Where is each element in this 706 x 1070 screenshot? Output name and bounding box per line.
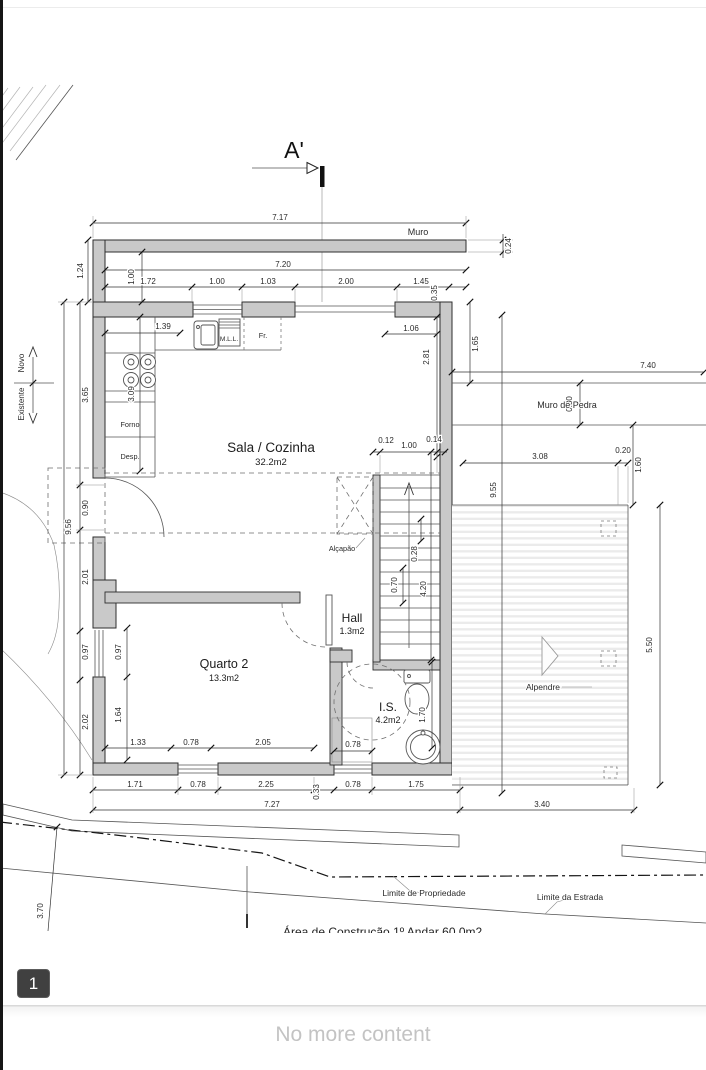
dim-1-60: 1.60 <box>634 457 643 473</box>
dim-0-12: 0.12 <box>378 436 394 445</box>
dim-7-20: 7.20 <box>275 260 291 269</box>
dim-1-33: 1.33 <box>130 738 146 747</box>
dim-7-40: 7.40 <box>640 361 656 370</box>
dishwasher-label: M.L.L. <box>220 336 238 343</box>
door-arc <box>105 478 164 537</box>
dim-3-65: 3.65 <box>81 387 90 403</box>
open-door-leaf <box>326 595 332 645</box>
dim-0-70: 0.70 <box>390 577 399 593</box>
door-arc-quarto2 <box>282 603 326 647</box>
dim-1-39: 1.39 <box>155 322 171 331</box>
dim-0-90: 0.90 <box>81 500 90 516</box>
dim-0-78-c: 0.78 <box>190 780 206 789</box>
novo-label: Novo <box>17 353 26 372</box>
dim-1-45: 1.45 <box>413 277 429 286</box>
dim-0-97-out: 0.97 <box>81 644 90 660</box>
garden-wall <box>93 240 466 252</box>
dim-1-00-v: 1.00 <box>127 269 136 285</box>
pantry-label: Desp. <box>120 452 139 461</box>
dim-2-02: 2.02 <box>81 714 90 730</box>
washbasin-icon <box>406 730 440 764</box>
dim-0-78-d: 0.78 <box>345 780 361 789</box>
alpendre-label: Alpendre <box>526 682 560 692</box>
room-hall-area: 1.3m2 <box>339 626 364 636</box>
footer-separator <box>0 1005 706 1017</box>
property-boundary-line <box>0 822 706 877</box>
dim-1-72: 1.72 <box>140 277 156 286</box>
dim-1-71: 1.71 <box>127 780 143 789</box>
dim-2-25: 2.25 <box>258 780 274 789</box>
dim-1-03: 1.03 <box>260 277 276 286</box>
dim-7-17: 7.17 <box>272 213 288 222</box>
stairs <box>373 475 440 662</box>
dim-2-81: 2.81 <box>422 349 431 365</box>
dim-0-14: 0.14 <box>426 435 442 444</box>
dim-3-08: 3.08 <box>532 452 548 461</box>
room-hall-name: Hall <box>342 611 363 625</box>
oven-label: Forno <box>120 420 139 429</box>
limite-estrada-label: Limite da Estrada <box>537 892 603 902</box>
dim-3-40: 3.40 <box>534 800 550 809</box>
room-is-area: 4.2m2 <box>375 715 400 725</box>
stove-icon <box>124 355 156 388</box>
dim-0-20: 0.20 <box>615 446 631 455</box>
dim-0-35: 0.35 <box>430 285 439 301</box>
dim-5-50: 5.50 <box>645 637 654 653</box>
page-number-badge: 1 <box>17 969 50 998</box>
viewer-footer: No more content <box>0 1005 706 1070</box>
dim-2-05: 2.05 <box>255 738 271 747</box>
room-quarto2-area: 13.3m2 <box>209 673 239 683</box>
muro-de-pedra-label: Muro de Pedra <box>537 400 597 410</box>
room-quarto2-name: Quarto 2 <box>200 657 249 671</box>
sink-icon <box>194 321 218 349</box>
fridge-label: Fr. <box>259 331 268 340</box>
dim-3-70: 3.70 <box>36 903 45 919</box>
dim-1-06: 1.06 <box>403 324 419 333</box>
dim-3-09: 3.09 <box>127 386 136 402</box>
end-of-content-message: No more content <box>0 1023 706 1047</box>
document-viewer: A' <box>0 0 706 1070</box>
dim-0-33: 0.33 <box>312 784 321 800</box>
section-label: A' <box>284 137 304 163</box>
limite-propriedade-label: Limite de Propriedade <box>382 888 465 898</box>
dim-9-56: 9.56 <box>64 519 73 535</box>
deck <box>452 383 706 785</box>
edge-strip <box>0 0 3 1070</box>
dim-9-55: 9.55 <box>489 482 498 498</box>
dim-1-24: 1.24 <box>76 263 85 279</box>
dim-2-00: 2.00 <box>338 277 354 286</box>
trapdoor <box>337 477 373 548</box>
existente-label: Existente <box>17 387 26 420</box>
dim-4-20: 4.20 <box>419 581 428 597</box>
muro-label: Muro <box>408 227 429 237</box>
dim-2-01: 2.01 <box>81 569 90 585</box>
room-sala-area: 32.2m2 <box>255 457 287 468</box>
dim-1-00-top: 1.00 <box>209 277 225 286</box>
dim-1-00-stairs: 1.00 <box>401 441 417 450</box>
dim-1-75: 1.75 <box>408 780 424 789</box>
dim-0-24: 0.24 <box>504 238 513 254</box>
quarto2-wall <box>105 592 300 603</box>
dim-0-78-a: 0.78 <box>183 738 199 747</box>
room-is-name: I.S. <box>379 700 397 714</box>
area-construcao-label: Área de Construção 1º Andar 60.0m2 <box>283 924 482 939</box>
dim-1-65: 1.65 <box>471 336 480 352</box>
dim-1-64: 1.64 <box>114 707 123 723</box>
room-sala-name: Sala / Cozinha <box>227 440 315 455</box>
dim-7-27: 7.27 <box>264 800 280 809</box>
trapdoor-label: Alçapão <box>329 544 355 553</box>
floor-plan-page[interactable]: A' <box>0 0 706 1005</box>
dim-0-28: 0.28 <box>410 546 419 562</box>
dim-1-70: 1.70 <box>418 707 427 723</box>
dim-0-97-in: 0.97 <box>114 644 123 660</box>
dim-0-78-b: 0.78 <box>345 740 361 749</box>
